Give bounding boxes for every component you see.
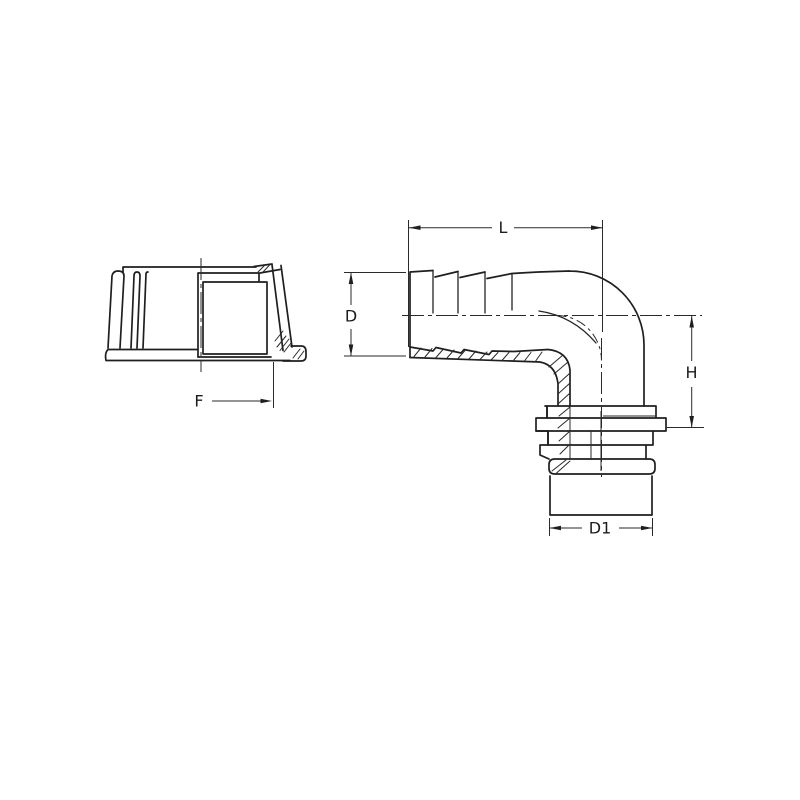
dim-L-extension-lines [409, 220, 603, 347]
dim-D1-arrow-right [641, 526, 653, 531]
cap-rib-left [108, 271, 124, 348]
dim-H: H [666, 316, 704, 428]
technical-drawing-canvas: L D H D1 F [0, 0, 800, 800]
spigot-cylinder [550, 476, 652, 515]
dim-L: L [409, 218, 603, 347]
cap-rib-second [131, 272, 148, 348]
elbow-main-view [402, 271, 702, 516]
cap-top-edge [123, 267, 256, 272]
dim-D: D [344, 273, 406, 357]
drawing-page: L D H D1 F [0, 0, 800, 800]
dim-label-F: F [194, 392, 203, 411]
bend-centerline-arc [557, 316, 602, 361]
cap-right-wall [272, 265, 292, 351]
dim-label-D1: D1 [589, 519, 612, 538]
dim-D-arrow-bottom [349, 345, 354, 357]
dim-L-arrow-left [409, 225, 421, 230]
elbow-outline [410, 271, 644, 407]
dim-D1-arrow-left [550, 526, 562, 531]
thread-detail-lines [570, 406, 656, 471]
dim-H-arrow-top [689, 316, 694, 328]
dim-label-H: H [685, 363, 697, 382]
cap-socket-outer [198, 273, 259, 357]
barb-ridges [433, 271, 512, 314]
dim-L-arrow-right [591, 225, 603, 230]
thread-section-profile [536, 406, 548, 445]
dim-D1: D1 [550, 518, 653, 538]
dim-H-arrow-bottom [689, 416, 694, 428]
dim-F: F [194, 362, 273, 411]
dim-F-arrow [261, 399, 273, 404]
elbow-section-wall [410, 347, 570, 406]
cap-side-view [106, 258, 306, 372]
dim-D-arrow-top [349, 273, 354, 285]
dim-label-L: L [499, 218, 508, 237]
cap-hatch [258, 265, 304, 360]
cap-socket-inner [203, 282, 267, 354]
dim-label-D: D [345, 307, 357, 326]
